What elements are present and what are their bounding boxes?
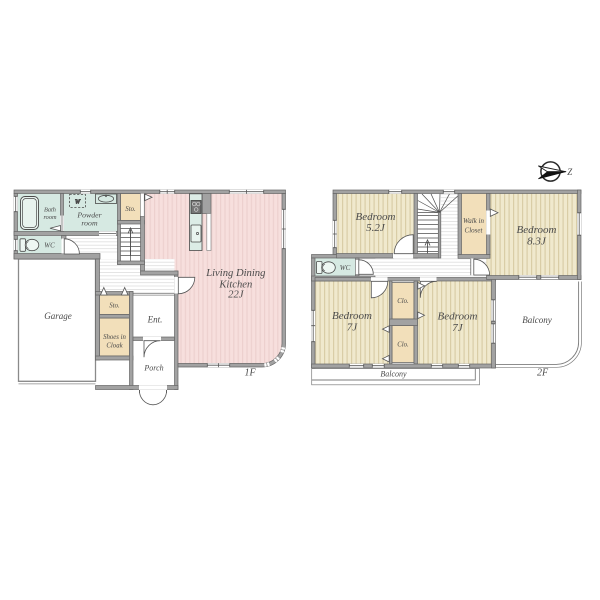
svg-text:Clo.: Clo. [397,298,409,305]
svg-text:Living Dining: Living Dining [205,268,265,279]
svg-text:Sto.: Sto. [109,303,120,310]
svg-text:WC: WC [340,264,351,272]
svg-text:Closet: Closet [465,227,484,235]
svg-text:room: room [81,219,98,228]
svg-text:Sto.: Sto. [125,206,136,213]
svg-text:Bedroom: Bedroom [517,224,557,236]
svg-text:1F: 1F [244,368,256,379]
svg-text:WC: WC [44,242,55,250]
svg-text:7J: 7J [452,322,464,334]
svg-text:Walk in: Walk in [463,217,484,225]
svg-text:5.2J: 5.2J [366,222,386,234]
svg-text:Porch: Porch [143,364,163,373]
svg-text:Bedroom: Bedroom [438,311,478,323]
svg-text:Ent.: Ent. [147,315,163,325]
svg-text:Shoes in: Shoes in [103,334,126,341]
svg-text:Balcony: Balcony [380,370,407,379]
svg-text:Bath: Bath [44,207,56,214]
svg-text:2F: 2F [537,368,549,379]
svg-text:Bedroom: Bedroom [332,310,372,322]
svg-text:Clo.: Clo. [397,342,409,349]
svg-text:22J: 22J [228,290,245,301]
svg-text:Garage: Garage [44,311,72,321]
svg-text:room: room [43,214,57,221]
svg-text:Balcony: Balcony [522,315,552,325]
svg-text:7J: 7J [347,322,359,334]
svg-text:8.3J: 8.3J [527,236,547,248]
svg-text:Cloak: Cloak [106,342,123,349]
